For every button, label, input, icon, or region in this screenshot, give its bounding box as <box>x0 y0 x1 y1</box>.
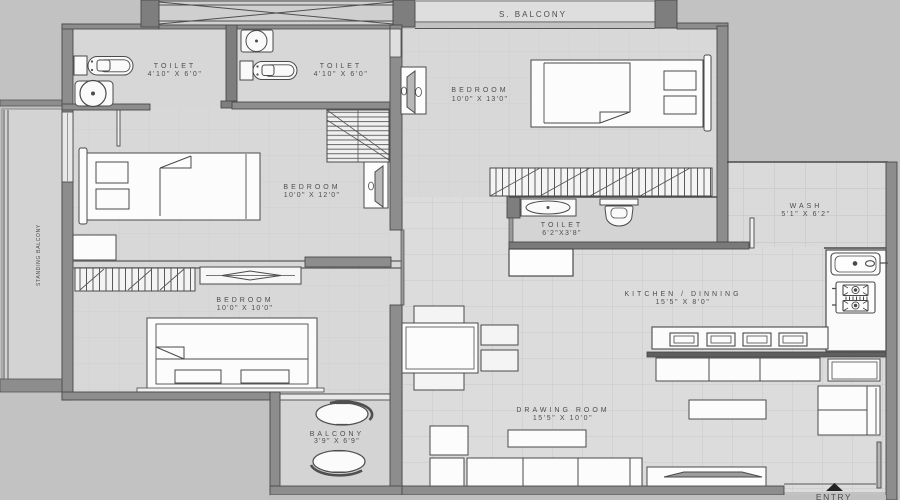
svg-text:15'5" X 8'0": 15'5" X 8'0" <box>656 299 711 306</box>
svg-text:BEDROOM: BEDROOM <box>283 184 340 191</box>
svg-text:4'10" X 6'0": 4'10" X 6'0" <box>314 71 369 78</box>
svg-text:ENTRY: ENTRY <box>816 492 852 500</box>
svg-text:BEDROOM: BEDROOM <box>451 87 508 94</box>
svg-text:BEDROOM: BEDROOM <box>216 297 273 304</box>
svg-text:WASH: WASH <box>790 203 823 210</box>
svg-text:S. BALCONY: S. BALCONY <box>499 10 567 19</box>
svg-text:KITCHEN / DINNING: KITCHEN / DINNING <box>624 291 741 298</box>
svg-text:15'5" X 10'0": 15'5" X 10'0" <box>533 415 593 422</box>
svg-text:3'9" X 6'9": 3'9" X 6'9" <box>314 438 360 445</box>
svg-text:5'1" X 6'2": 5'1" X 6'2" <box>781 211 830 218</box>
svg-text:10'0" X 13'0": 10'0" X 13'0" <box>452 96 508 103</box>
svg-text:BALCONY: BALCONY <box>310 431 364 438</box>
svg-text:TOILET: TOILET <box>154 63 196 70</box>
svg-text:STANDING BALCONY: STANDING BALCONY <box>36 224 42 286</box>
svg-text:TOILET: TOILET <box>320 63 362 70</box>
svg-text:DRAWING ROOM: DRAWING ROOM <box>516 407 609 414</box>
svg-text:6'2"X3'8": 6'2"X3'8" <box>542 230 582 237</box>
svg-text:10'0" X 12'0": 10'0" X 12'0" <box>284 192 340 199</box>
svg-text:4'10" X 6'0": 4'10" X 6'0" <box>148 71 203 78</box>
svg-text:10'0" X 10'0": 10'0" X 10'0" <box>217 305 273 312</box>
svg-text:TOILET: TOILET <box>541 222 583 229</box>
